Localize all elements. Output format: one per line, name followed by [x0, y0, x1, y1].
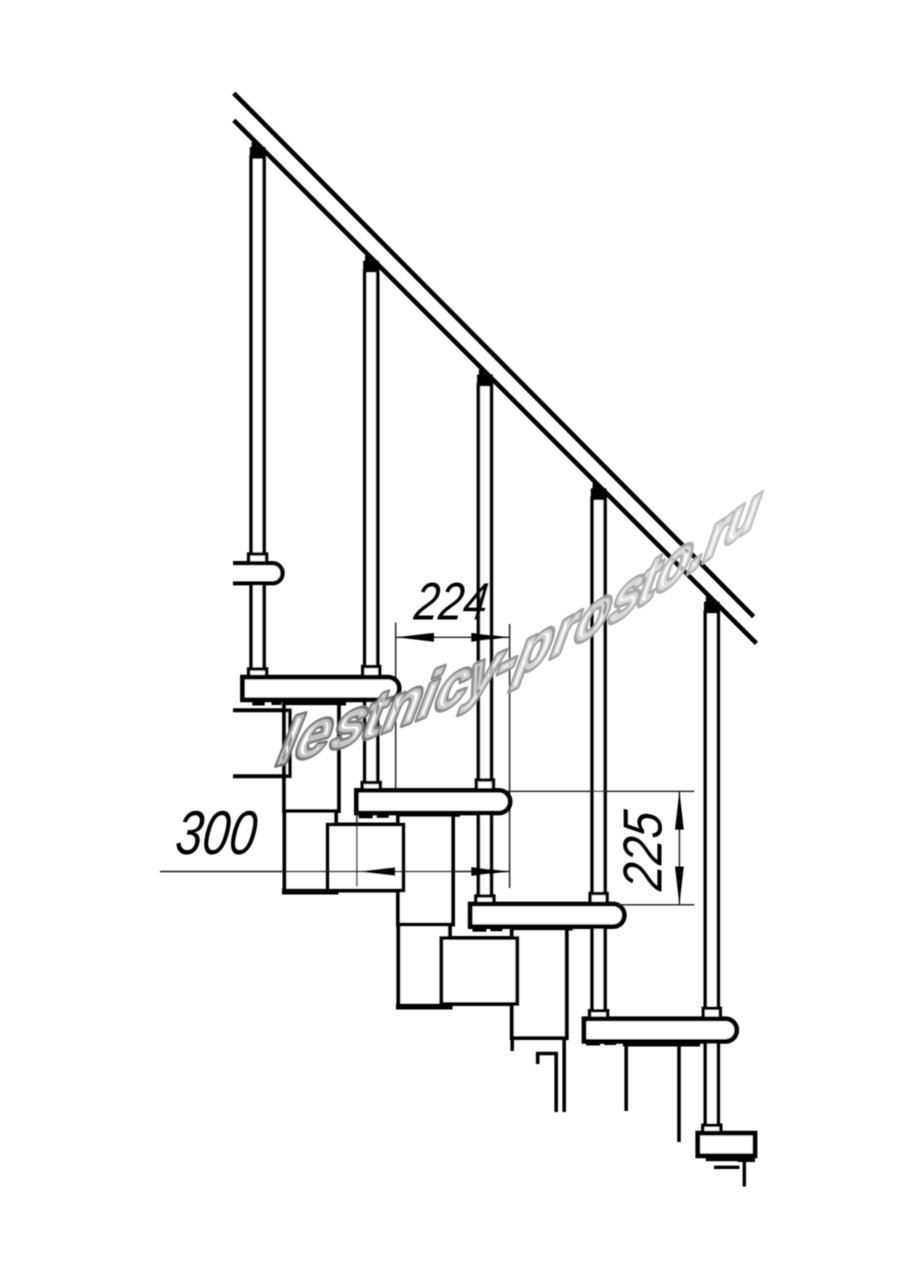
svg-text:300: 300: [172, 799, 261, 868]
svg-text:224: 224: [411, 573, 492, 632]
svg-text:225: 225: [612, 807, 674, 894]
